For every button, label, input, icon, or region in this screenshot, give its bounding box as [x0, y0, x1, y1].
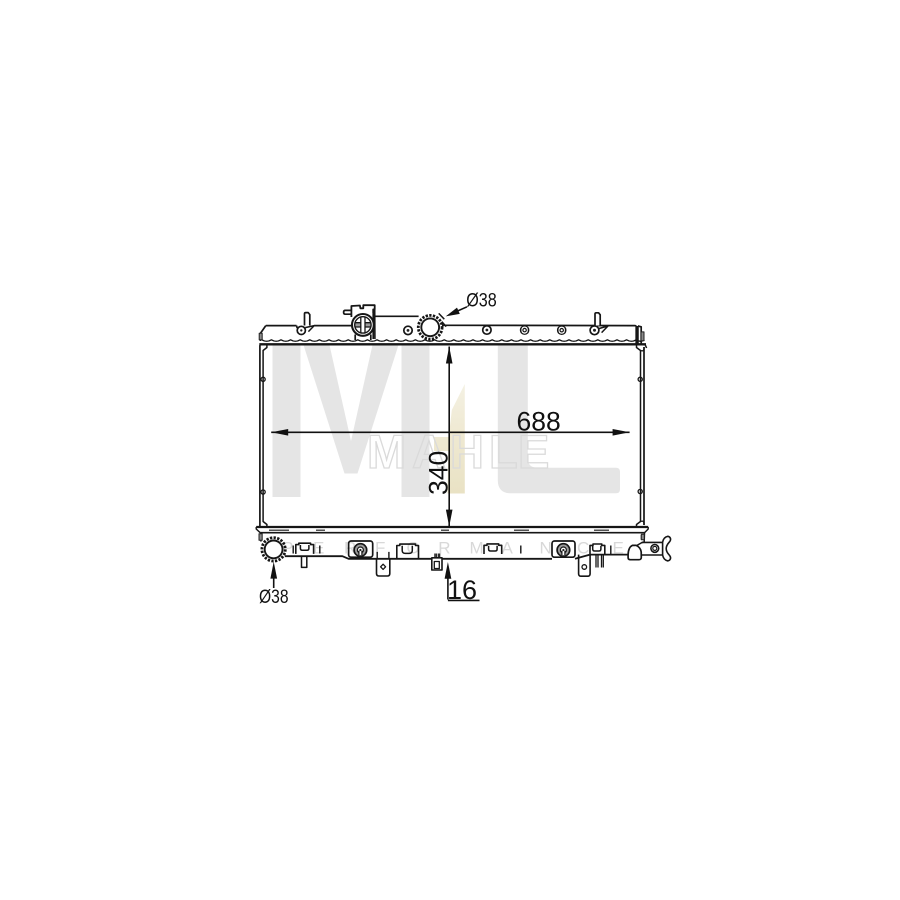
svg-text:L: L: [489, 425, 518, 478]
svg-text:C: C: [577, 539, 589, 558]
svg-text:M: M: [367, 425, 406, 478]
svg-text:M: M: [470, 539, 484, 558]
svg-text:Ø38: Ø38: [466, 291, 497, 312]
svg-text:H: H: [450, 425, 484, 478]
svg-text:E: E: [518, 425, 549, 478]
svg-text:16: 16: [447, 575, 477, 605]
svg-text:P: P: [282, 539, 293, 558]
svg-text:F: F: [375, 539, 385, 558]
svg-text:R: R: [344, 539, 356, 558]
svg-text:N: N: [540, 539, 552, 558]
svg-text:E: E: [313, 539, 324, 558]
svg-text:O: O: [407, 539, 420, 558]
svg-text:E: E: [613, 539, 624, 558]
svg-text:R: R: [438, 539, 450, 558]
svg-text:A: A: [412, 425, 446, 478]
svg-text:A: A: [502, 539, 514, 558]
svg-text:Ø38: Ø38: [259, 587, 289, 608]
